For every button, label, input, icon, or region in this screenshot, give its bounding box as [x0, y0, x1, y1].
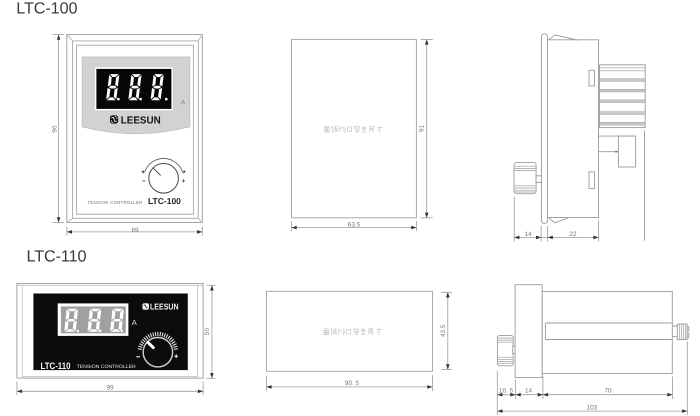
svg-text:90. 5: 90. 5	[345, 380, 360, 387]
svg-text:50: 50	[204, 328, 211, 336]
svg-text:96: 96	[52, 125, 59, 133]
svg-text:103: 103	[587, 405, 598, 412]
svg-text:TENSION CONTROLLER: TENSION CONTROLLER	[88, 200, 143, 205]
svg-text:A: A	[132, 318, 137, 327]
svg-text:70: 70	[604, 388, 612, 395]
svg-text:LEESUN: LEESUN	[121, 115, 161, 126]
svg-text:14: 14	[525, 388, 533, 395]
svg-text:LTC-110: LTC-110	[27, 248, 87, 266]
svg-text:14: 14	[524, 231, 532, 238]
svg-text:91: 91	[418, 125, 425, 133]
svg-text:99: 99	[106, 385, 114, 392]
svg-text:LEESUN: LEESUN	[150, 302, 179, 312]
svg-text:22: 22	[569, 231, 577, 238]
svg-text:TENSION CONTROLLER: TENSION CONTROLLER	[77, 364, 137, 370]
svg-text:10. 5: 10. 5	[499, 388, 514, 395]
svg-text:43.5: 43.5	[440, 324, 447, 337]
svg-text:LTC-100: LTC-100	[148, 196, 181, 206]
svg-text:A: A	[181, 99, 186, 106]
svg-text:63.5: 63.5	[348, 221, 361, 228]
svg-text:69: 69	[131, 227, 139, 234]
svg-text:LTC-110: LTC-110	[41, 360, 71, 371]
svg-text:LTC-100: LTC-100	[16, 0, 77, 18]
